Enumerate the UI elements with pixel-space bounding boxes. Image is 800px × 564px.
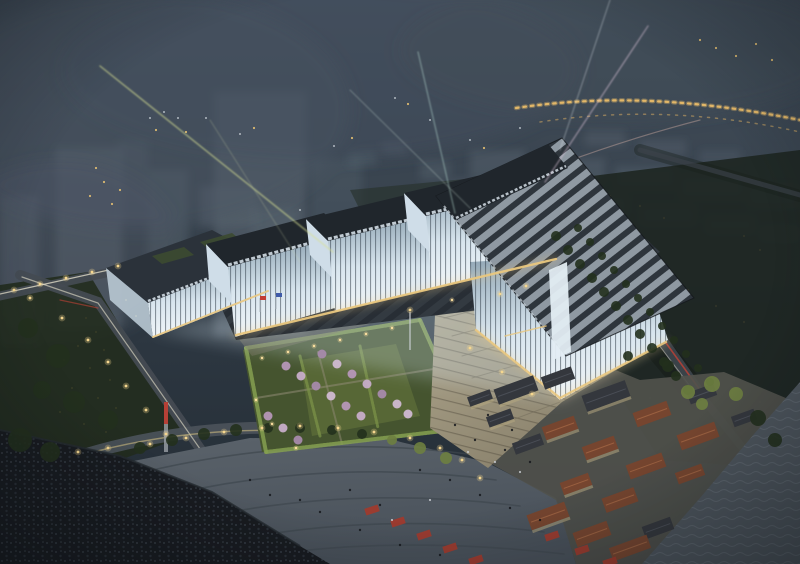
vignette [0,0,800,564]
scene-canvas [0,0,800,564]
architectural-rendering: Aerial night-time architectural renderin… [0,0,800,564]
